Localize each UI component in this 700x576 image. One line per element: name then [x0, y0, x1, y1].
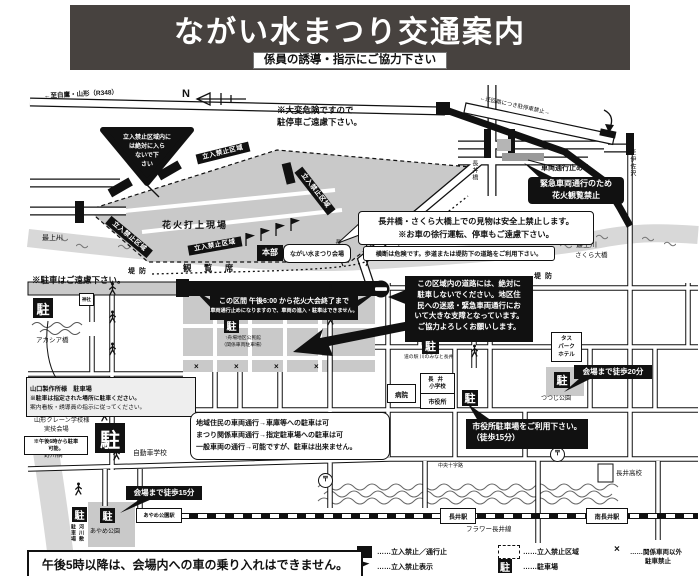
highschool-label: 長井高校: [616, 470, 642, 477]
funaba-line2: （関係車両駐車場）: [197, 343, 289, 350]
kasen-col-right: 河川敷: [78, 524, 85, 542]
legend-x-icon: ×: [614, 544, 620, 555]
triangle-line2: は絶対に入ら: [100, 143, 194, 152]
to-isazawa-label: ↑至伊佐沢: [628, 142, 635, 177]
nagai-station-box: 長井駅: [440, 508, 476, 524]
chuo-crossroad-label: 中央十字路: [438, 464, 463, 470]
resident-line3: 一般車両の通行→可能ですが、駐車は出来ません。: [196, 442, 357, 454]
highschool-building: [598, 464, 613, 482]
x-mark: ×: [274, 362, 279, 371]
closed-gray-segment: [497, 139, 511, 151]
kasen-col-left: 駐車場: [70, 524, 77, 542]
yamaguchi-note-box: 山口製作所様 駐車場 ※駐車は指定された場所に駐車ください。 案内看板・誘導員の…: [26, 377, 196, 417]
crane-note-line2: 可能。: [48, 446, 64, 453]
tas-line1: タス: [561, 335, 572, 343]
parking-icon-ayame: 駐: [100, 508, 115, 523]
page-subtitle: 係員の誘導・指示にご協力下さい: [253, 52, 447, 69]
emergency-line2: 花火観覧禁止: [528, 190, 624, 202]
walk15-banner: 会場まで徒歩15分: [126, 486, 202, 500]
crane-note-line1: ※午後6時から駐車: [34, 439, 78, 446]
closed-section-line1: この区間 午後6:00 から花火大会終了まで: [210, 297, 358, 307]
legend-no-entry-area: ……立入禁止区域: [523, 547, 579, 557]
teibo-label-left: 堤防: [128, 268, 150, 276]
resident-rules-box: 地域住民の車両通行→車庫等への駐車は可 まつり関係車両通行→指定駐車場への駐車は…: [190, 412, 390, 460]
parking-icon-levee: 駐: [33, 298, 53, 318]
cityhall-line2: （徒歩15分）: [466, 432, 588, 443]
minami-nagai-station-box: 南長井駅: [586, 508, 628, 524]
area-no-parking-callout: この区域内の道路には、絶対に 駐車しないでください。地区住 民への迷惑・緊急車両…: [405, 276, 533, 342]
closed-section-banner: この区間 午後6:00 から花火大会終了まで 車両通行止めになりますので、車両の…: [210, 296, 358, 320]
venue-box: ながい水まつり会場: [283, 244, 351, 263]
map-graphics: [0, 0, 700, 576]
nagai-bridge-label-top: 長井橋: [470, 160, 477, 181]
legend-no-entry-pass: ……立入禁止／通行止: [377, 547, 447, 557]
danger-note-line1: ※大変危険ですので: [277, 104, 362, 116]
parking-icon-crane: 駐: [95, 423, 125, 453]
traffic-guide-poster: ながい水まつり交通案内 係員の誘導・指示にご協力下さい ←至白鷹・山形（R348…: [0, 0, 700, 576]
tas-line3: ホテル: [558, 351, 575, 359]
jinja-box: 神社: [79, 293, 94, 306]
flower-line-label: フラワー長井線: [466, 526, 512, 533]
area-warning-line3: 民への迷惑・緊急車両通行にお: [405, 301, 533, 312]
postal-icon: 〒: [318, 473, 333, 488]
ayame-park-label: あやめ公園: [90, 529, 120, 536]
triangle-line4: さい: [100, 161, 194, 170]
parking-icon-funaba: 駐: [224, 318, 239, 333]
city-hall-box: 市役所: [420, 393, 455, 409]
hospital-box: 病院: [387, 384, 416, 403]
crossing-warning-box: 横断は危険です。歩道または堤防下の道路をご利用下さい。: [363, 246, 555, 261]
legend-parking-icon: 駐: [498, 559, 512, 573]
footer-notice: 午後5時以降は、会場内への車の乗り入れはできません。: [27, 550, 363, 576]
triangle-line1: 立入禁止区域内に: [100, 134, 194, 143]
area-warning-line4: いて大きな支障となっています。: [405, 311, 533, 322]
compass-n-label: N: [182, 88, 190, 101]
emergency-callout: 緊急車両通行のため 花火観覧禁止: [528, 177, 624, 204]
postal-icon: 〒: [550, 447, 565, 462]
parking-icon-riverside: 駐: [72, 507, 87, 522]
walk20-banner: 会場まで徒歩20分: [574, 365, 652, 379]
x-mark: ×: [314, 362, 319, 371]
resident-line1: 地域住民の車両通行→車庫等への駐車は可: [196, 418, 329, 430]
resident-line2: まつり関係車両通行→指定駐車場への駐車は可: [196, 430, 343, 442]
danger-note-line2: 駐停車ご遠慮下さい。: [277, 116, 362, 128]
danger-note: ※大変危険ですので 駐停車ご遠慮下さい。: [277, 104, 362, 128]
area-warning-line2: 駐車しないでください。地区住: [405, 290, 533, 301]
kanranseki-label: 観 覧 席: [183, 264, 238, 274]
closed-gray-bar: [502, 153, 544, 161]
tas-line2: パーク: [558, 343, 575, 351]
tas-park-hotel-box: タス パーク ホテル: [551, 332, 582, 362]
cityhall-line1: 市役所駐車場をご利用下さい。: [466, 421, 588, 432]
cityhall-parking-callout: 市役所駐車場をご利用下さい。 （徒歩15分）: [466, 419, 588, 449]
crane-note-box: ※午後6時から駐車 可能。: [24, 436, 88, 455]
teibo-label-right: 堤防: [534, 273, 556, 281]
yamaguchi-line2: ※駐車は指定された場所に駐車ください。: [30, 393, 140, 402]
yamaguchi-line3: 案内看板・誘導員の指示に従ってください。: [30, 402, 145, 411]
elem-line2: 小学校: [429, 384, 446, 392]
michinoeki-label: 道の駅 川のみなと長井: [404, 355, 453, 361]
triangle-line3: ないで下: [100, 152, 194, 161]
header-banner: ながい水まつり交通案内 係員の誘導・指示にご協力下さい: [70, 5, 630, 70]
sakura-bridge-label: さくら大橋: [575, 252, 608, 259]
legend-no-entry-sign: ……立入禁止表示: [377, 562, 433, 572]
mogami-river-label-left: 最上川: [42, 235, 63, 243]
honbu-box: 本部: [257, 245, 283, 261]
elementary-school-box: 長井 小学校: [420, 373, 455, 395]
acacia-bridge-label: アカシア橋: [36, 337, 69, 344]
elem-line1: 長井: [428, 377, 447, 385]
area-warning-line1: この区域内の道路には、絶対に: [405, 279, 533, 290]
riverside-parking-label: 駐車場 河川敷: [70, 524, 85, 542]
tsutsuji-park-label: つつじ公園: [541, 396, 571, 403]
ayame-station-box: あやめ公園駅: [136, 508, 182, 523]
legend-zone-bracket-icon: [498, 545, 520, 559]
parking-icon-michinoeki: 駐: [422, 337, 439, 354]
vehicle-closed-label: 車両通行止め: [541, 165, 583, 173]
bridge-warning-line1: 長井橋・さくら大橋上での見物は安全上禁止します。: [378, 215, 574, 228]
funaba-note: ↑舟場地区公民館 （関係車両駐車場）: [197, 336, 289, 349]
area-warning-line5: ご協力よろしくお願いします。: [405, 322, 533, 333]
levee-no-parking-label: ※駐車はご遠慮下さい。: [32, 276, 126, 286]
x-mark: ×: [194, 362, 199, 371]
emergency-line1: 緊急車両通行のため: [528, 178, 624, 190]
parking-icon-cityhall: 駐: [462, 390, 478, 406]
fireworks-site-label: 花火打上現場: [162, 220, 228, 230]
legend-parking: ……駐車場: [523, 562, 558, 572]
parking-icon-tsutsuji: 駐: [554, 372, 570, 388]
crane-school-label2: 実技会場: [44, 426, 69, 433]
bridge-warning-line2: ※お車の徐行運転、停車もご遠慮下さい。: [398, 228, 554, 241]
page-title: ながい水まつり交通案内: [174, 7, 526, 51]
yamaguchi-line1: 山口製作所様 駐車場: [30, 384, 92, 393]
triangle-warning-text: 立入禁止区域内に は絶対に入ら ないで下 さい: [100, 134, 194, 170]
no-entry-sign: [373, 281, 390, 298]
x-mark: ×: [234, 362, 239, 371]
legend-related-only2: 駐車禁止: [645, 555, 671, 565]
closed-section-line2: 車両通行止めになりますので、車両の進入・駐車はできません。: [210, 307, 358, 315]
crane-school-label1: 山形クレーン学校様: [34, 417, 89, 424]
driving-school-label: 自動車学校: [133, 450, 167, 458]
bridge-warning-box: 長井橋・さくら大橋上での見物は安全上禁止します。 ※お車の徐行運転、停車もご遠慮…: [358, 211, 594, 245]
